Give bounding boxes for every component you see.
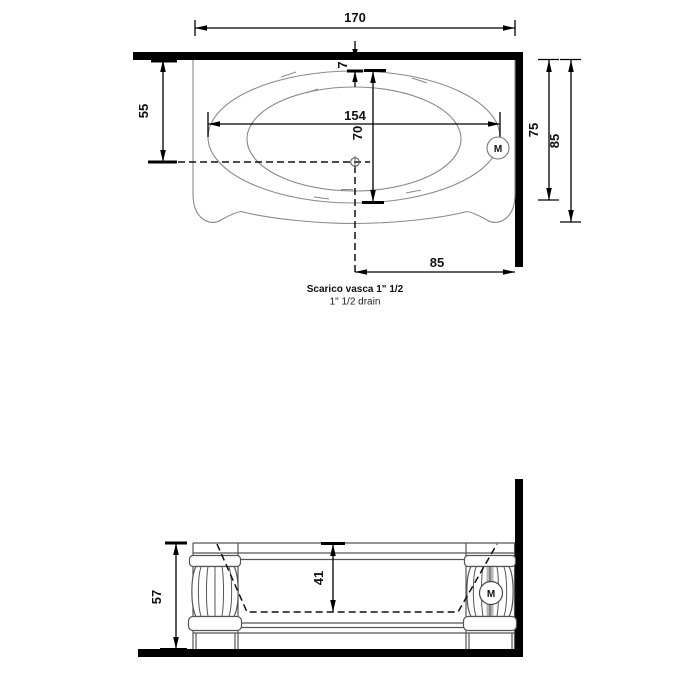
dim-85-bottom-label: 85 xyxy=(430,255,444,270)
left-column xyxy=(189,556,242,631)
motor-symbol-elevation: M xyxy=(480,582,503,605)
basin-hidden-profile xyxy=(217,544,497,612)
dim-57-label: 57 xyxy=(149,590,164,604)
dimension-depth-85: 85 xyxy=(547,60,581,223)
dim-41-label: 41 xyxy=(311,571,326,585)
floor xyxy=(138,649,523,657)
dim-7-label: 7 xyxy=(335,61,350,68)
dimension-drain-to-wall: 85 xyxy=(355,255,515,275)
side-view: M 57 41 xyxy=(138,479,523,657)
dimension-basin-depth: 41 xyxy=(311,544,345,613)
dimension-depth-75: 75 xyxy=(526,60,559,201)
drain-caption-italian: Scarico vasca 1" 1/2 xyxy=(307,284,404,295)
dim-75-label: 75 xyxy=(526,123,541,137)
tub-outline-plan xyxy=(193,60,515,224)
dim-154-label: 154 xyxy=(344,108,366,123)
dim-170-label: 170 xyxy=(344,10,366,25)
motor-plan-label: M xyxy=(494,144,502,155)
top-view: 170 55 7 154 xyxy=(133,10,581,308)
technical-drawing-bathtub: 170 55 7 154 xyxy=(0,0,700,700)
wall-top xyxy=(133,52,523,60)
drawing-svg: 170 55 7 154 xyxy=(0,0,700,700)
dimension-wall-to-drain: 55 xyxy=(136,60,177,162)
dimension-overall-height: 57 xyxy=(149,543,187,650)
drain-caption-english: 1" 1/2 drain xyxy=(330,297,381,308)
dim-85-right-label: 85 xyxy=(547,134,562,148)
dimension-overall-width: 170 xyxy=(195,10,515,36)
wall-right-elevation xyxy=(515,479,523,657)
dim-70-label: 70 xyxy=(350,126,365,140)
wall-right xyxy=(515,52,523,267)
motor-symbol-plan: M xyxy=(487,137,509,159)
motor-elevation-label: M xyxy=(487,589,495,600)
dimension-rim-offset: 7 xyxy=(335,41,363,87)
dim-55-label: 55 xyxy=(136,104,151,118)
